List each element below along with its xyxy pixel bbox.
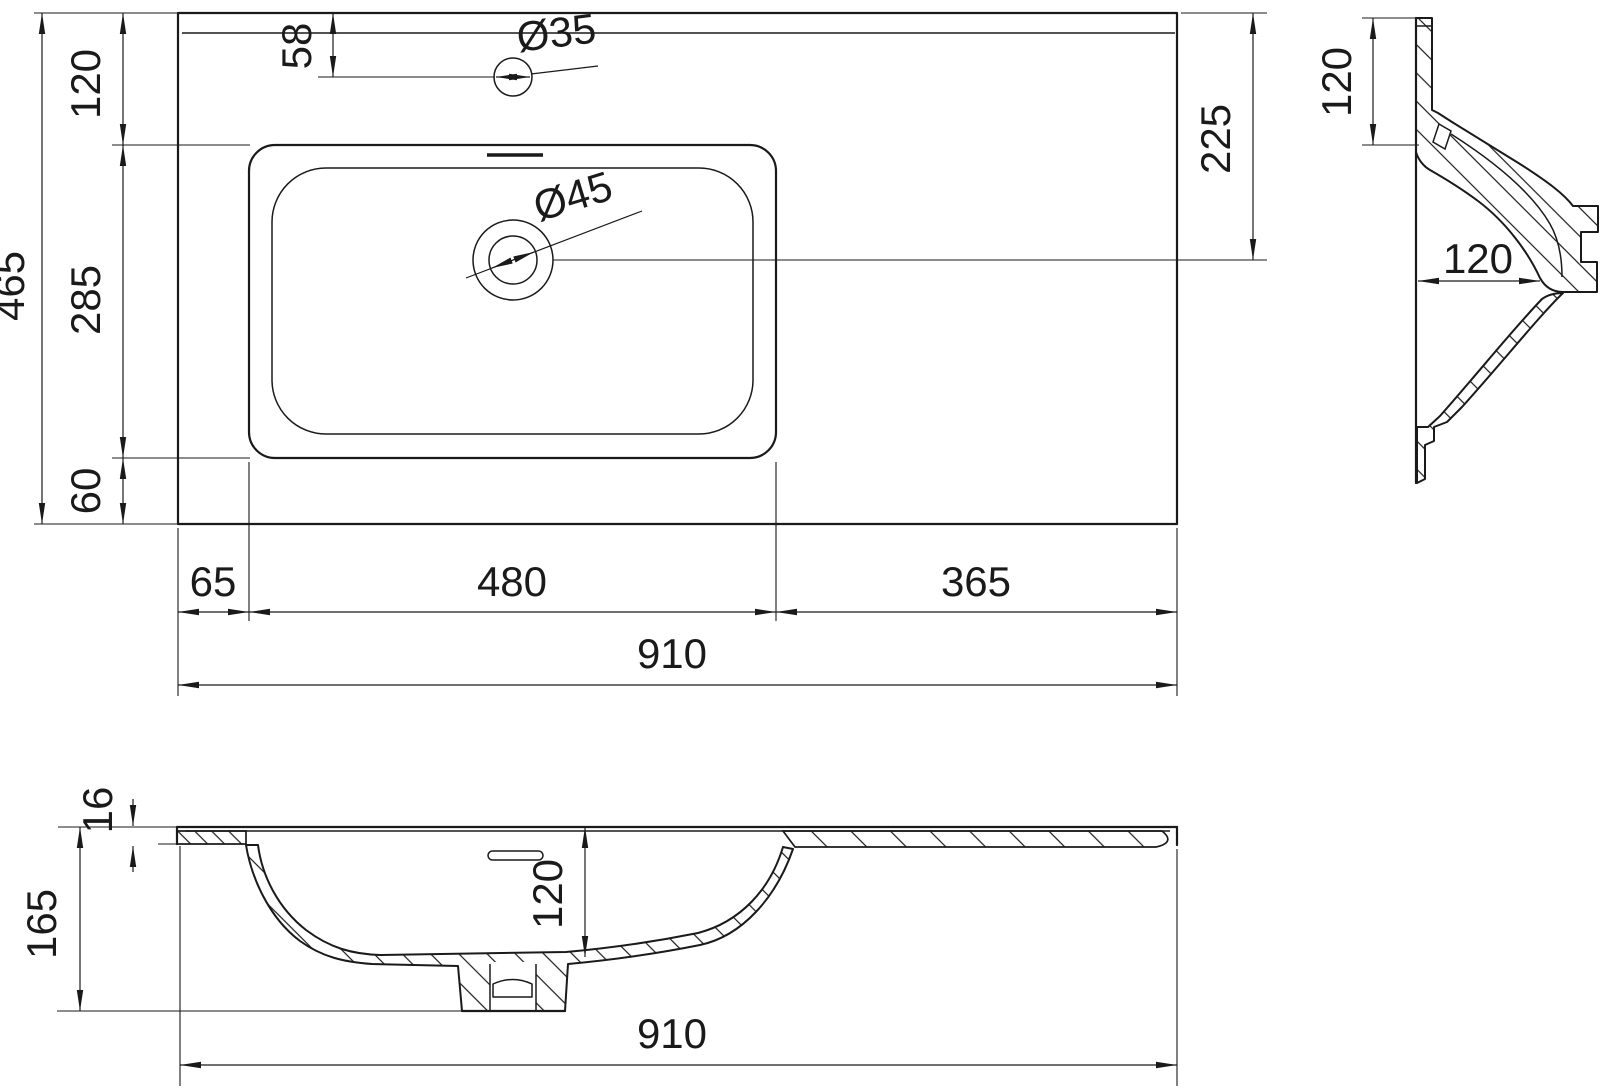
dimension-drain-offset: 225 (1192, 13, 1253, 260)
dimension-basin-to-front: 60 (62, 458, 123, 524)
dimension-basin-depth: 285 (62, 145, 123, 458)
side-basin-depth-label: 120 (1443, 235, 1513, 282)
basin-to-front-label: 60 (62, 468, 109, 515)
back-to-basin-label: 120 (62, 49, 109, 119)
washbasin-drawing: Ø35 Ø45 465 120 285 (0, 0, 1600, 1092)
drain-dia-label: Ø45 (528, 162, 618, 230)
total-depth-label: 465 (0, 251, 33, 321)
dimension-faucet-offset: 58 (273, 13, 333, 77)
top-view: Ø35 Ø45 465 120 285 (0, 4, 1267, 696)
drain-boss-cavity (490, 962, 536, 1010)
dimension-total-height: 165 (18, 827, 80, 1011)
side-section-view: 120 120 (1313, 18, 1598, 483)
front-section-view: 16 165 120 910 (18, 787, 1177, 1086)
faucet-dia-label: Ø35 (514, 4, 599, 60)
right-margin-label: 365 (941, 558, 1011, 605)
basin-width-label: 480 (477, 558, 547, 605)
front-left-rim-section (177, 831, 246, 844)
dimension-bowl-depth: 120 (524, 827, 585, 957)
countertop-outline (178, 13, 1177, 524)
dimension-back-to-basin: 120 (62, 13, 123, 145)
faucet-leader (531, 66, 598, 74)
basin-inner-edge (272, 168, 753, 434)
dimension-right-margin: 365 (776, 558, 1177, 612)
dimension-total-width: 910 (178, 630, 1177, 685)
front-total-width-label: 910 (637, 1010, 707, 1057)
dimension-total-depth: 465 (0, 13, 42, 524)
dimension-top-thickness: 16 (74, 787, 133, 872)
dimension-side-apron-height: 120 (1313, 18, 1373, 145)
technical-drawing-page: Ø35 Ø45 465 120 285 (0, 0, 1600, 1092)
basin-depth-label: 285 (62, 265, 109, 335)
side-apron-height-label: 120 (1313, 47, 1360, 117)
dimension-drain-diameter: Ø45 (528, 162, 618, 230)
top-thickness-label: 16 (74, 787, 121, 834)
basin-outer-edge (249, 145, 776, 458)
side-lower-shell (1417, 293, 1563, 483)
front-right-slab-section (783, 831, 1168, 847)
drain-offset-label: 225 (1192, 104, 1239, 174)
bowl-depth-label: 120 (524, 859, 571, 929)
overflow-slot-front (488, 851, 543, 860)
total-height-label: 165 (18, 889, 65, 959)
dimension-left-margin: 65 (178, 558, 249, 612)
dimension-front-total-width: 910 (180, 1010, 1177, 1065)
dimension-faucet-diameter: Ø35 (514, 4, 599, 60)
faucet-offset-label: 58 (273, 23, 320, 70)
total-width-label: 910 (637, 630, 707, 677)
left-margin-label: 65 (190, 558, 237, 605)
dimension-basin-width: 480 (249, 558, 776, 612)
